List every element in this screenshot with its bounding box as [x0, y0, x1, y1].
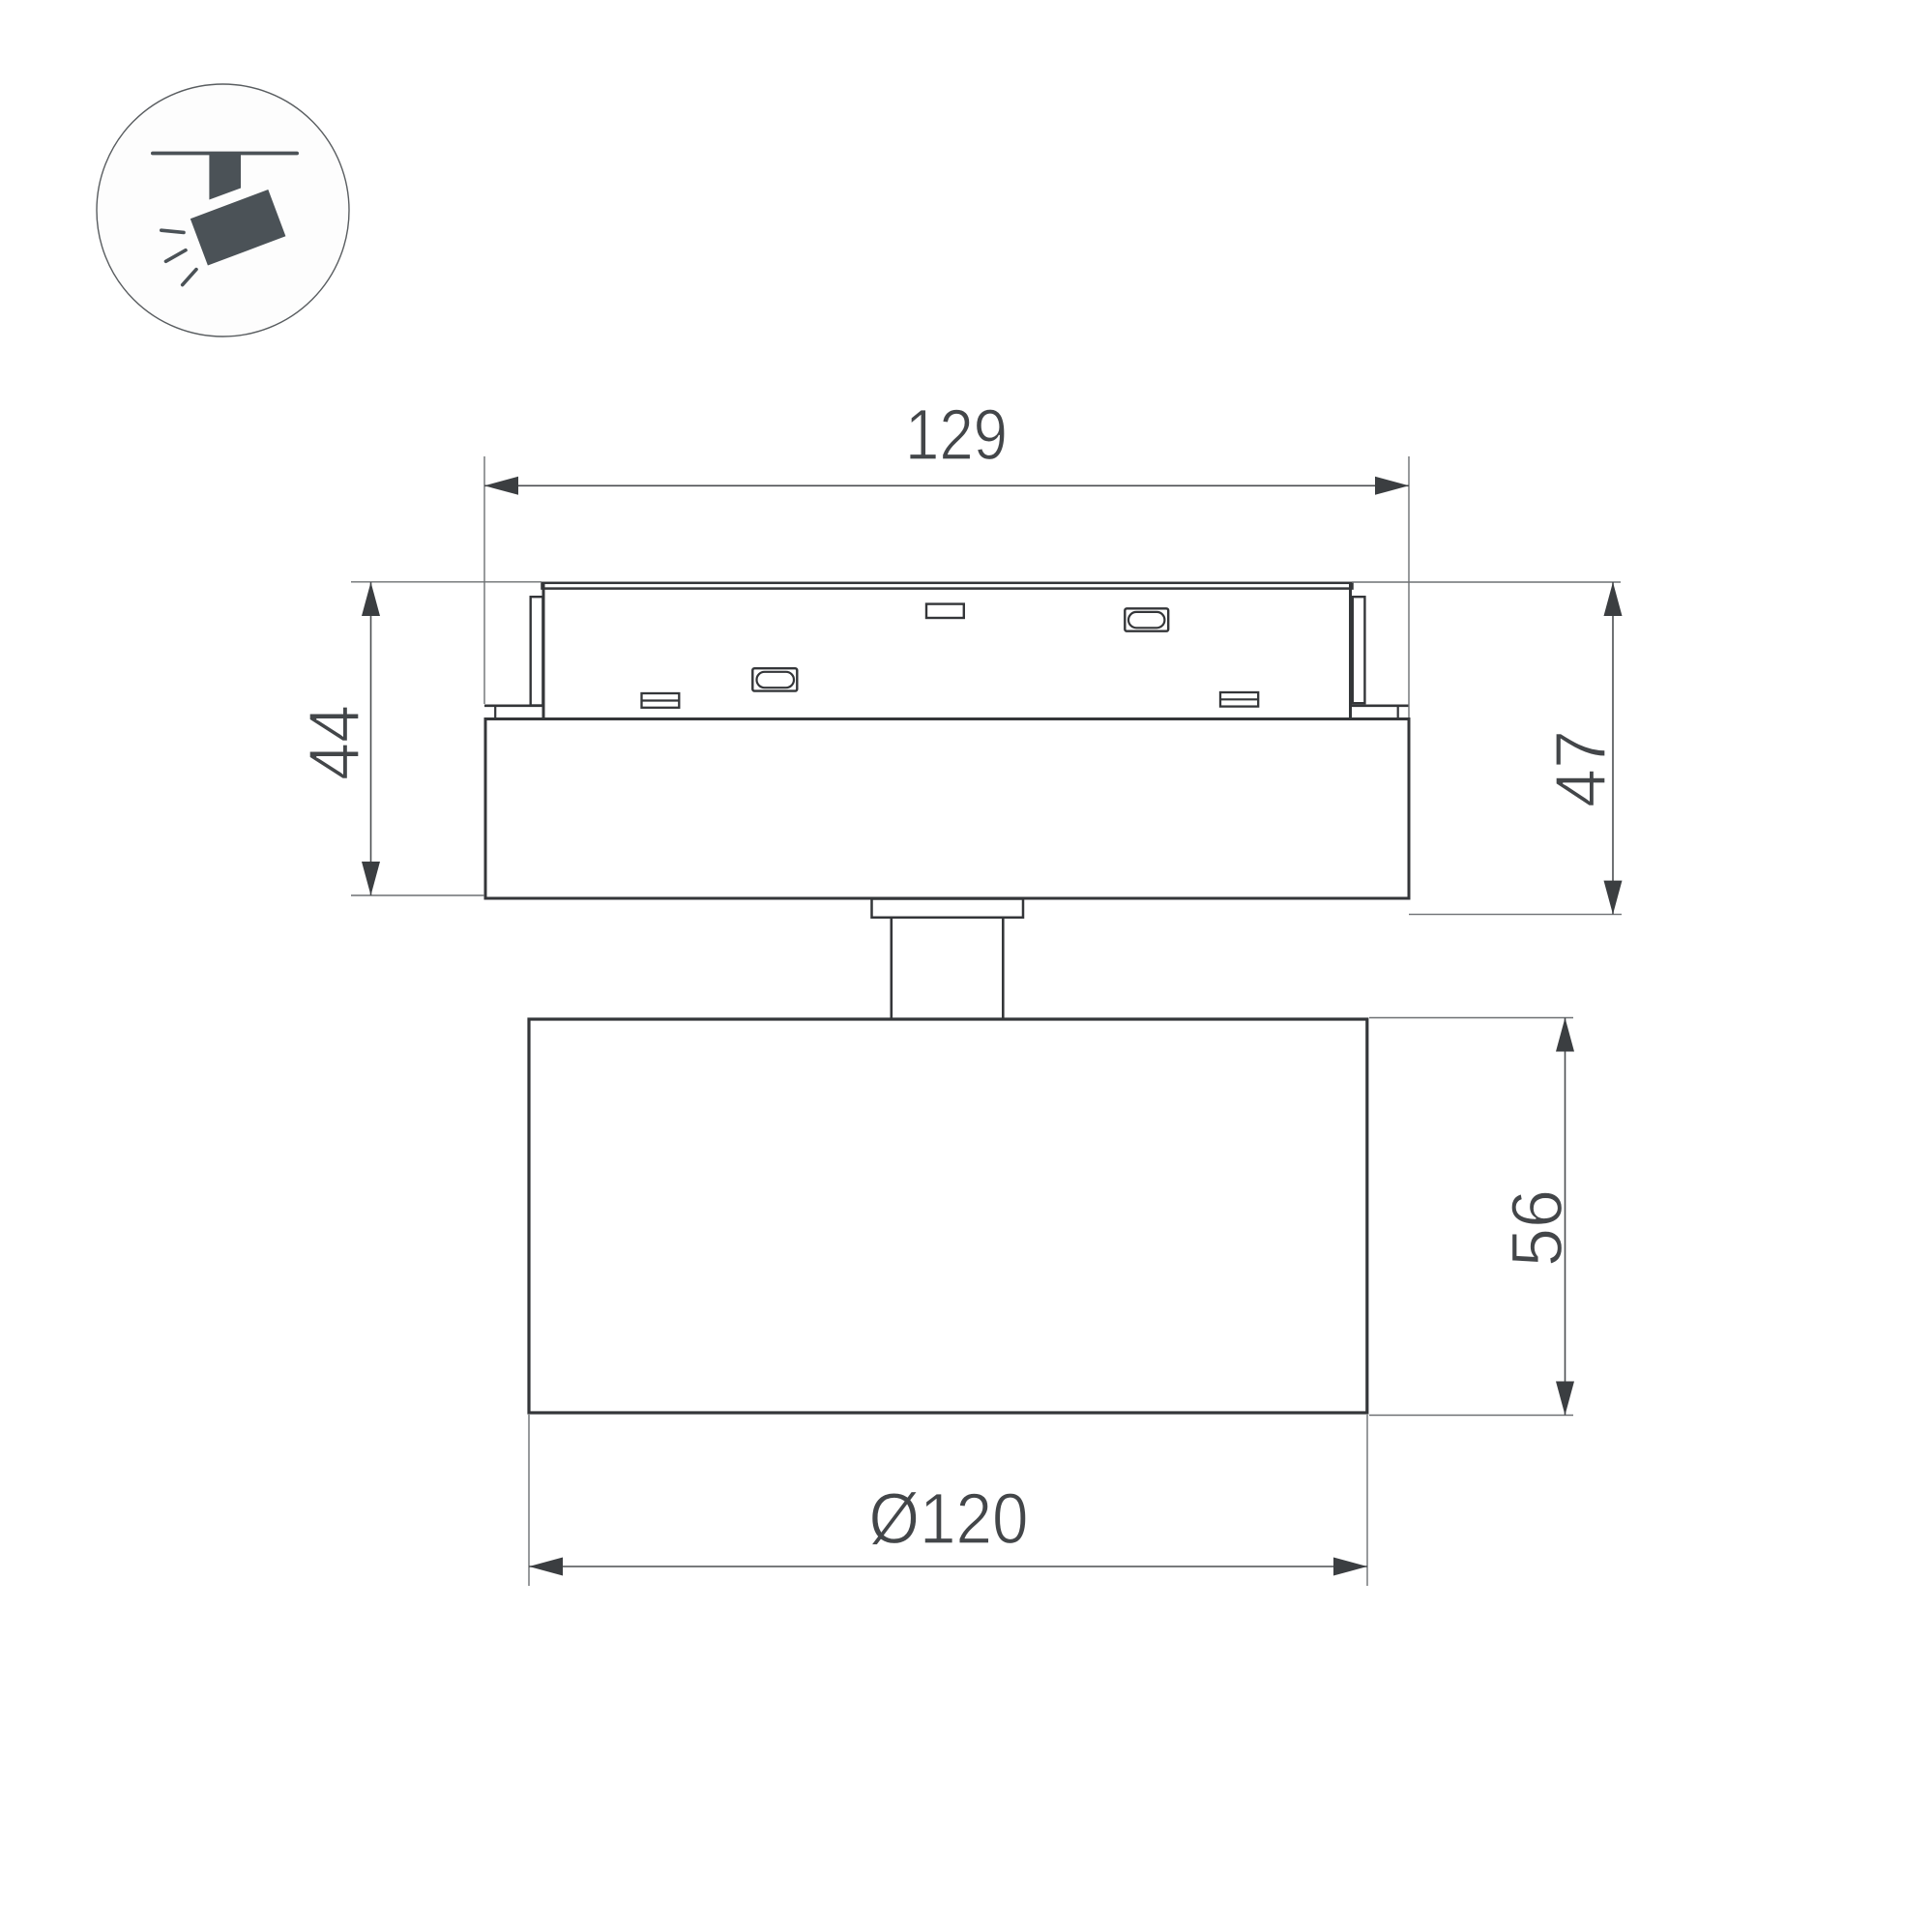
svg-text:44: 44 — [294, 705, 374, 780]
svg-text:47: 47 — [1540, 730, 1621, 807]
svg-text:Ø120: Ø120 — [869, 1478, 1029, 1559]
svg-text:56: 56 — [1497, 1189, 1577, 1267]
svg-text:129: 129 — [905, 395, 1008, 475]
